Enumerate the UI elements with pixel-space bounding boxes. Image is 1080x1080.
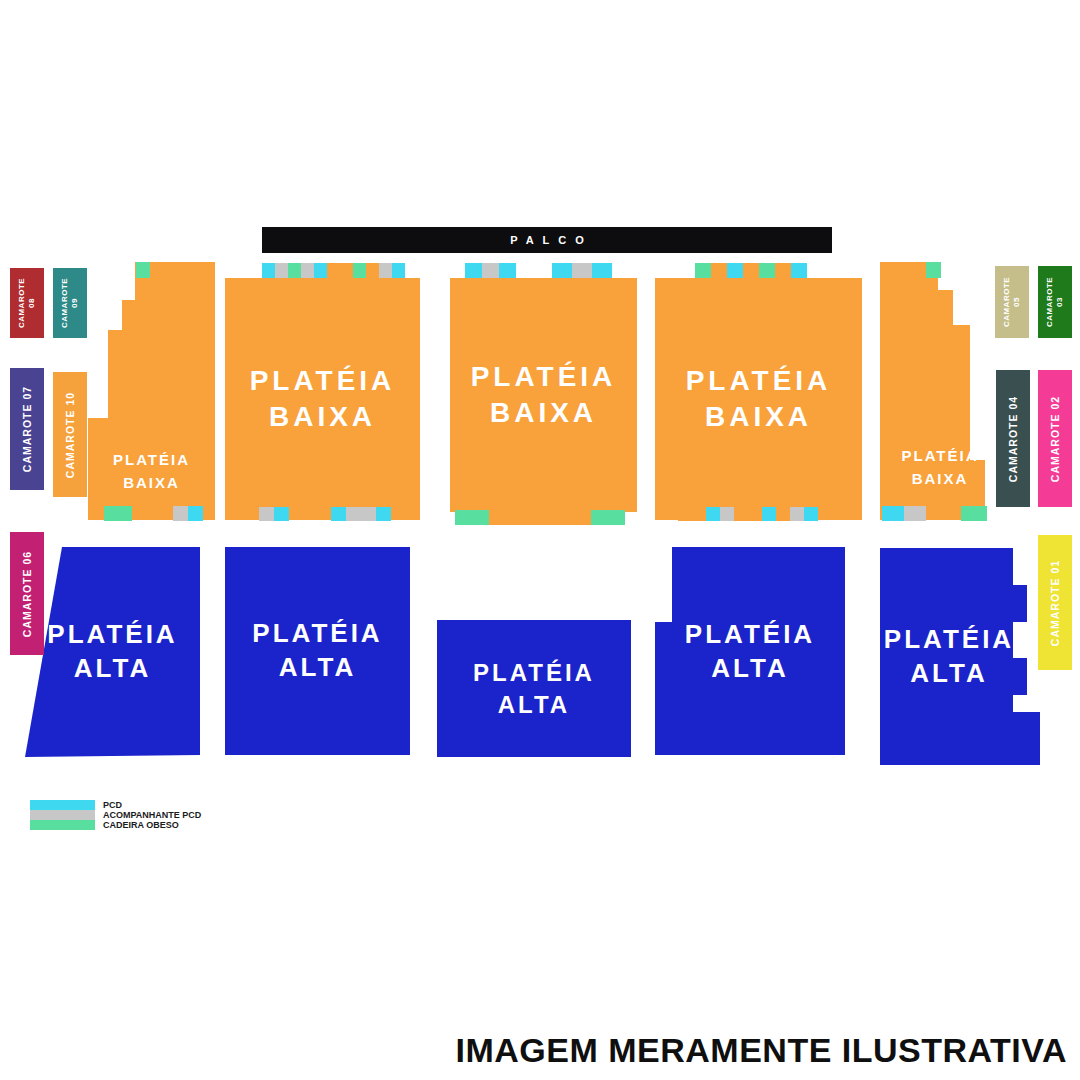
camarote-number: 05 <box>1012 277 1022 327</box>
seat-marker-pcd <box>791 263 807 278</box>
section-plateia-baixa-5[interactable]: PLATÉIA BAIXA <box>880 262 985 520</box>
seat-strip <box>926 262 941 278</box>
seat-marker-obeso <box>591 510 608 525</box>
seat-marker-pcd <box>804 507 818 521</box>
section-plateia-baixa-4[interactable]: PLATÉIA BAIXA <box>655 278 862 520</box>
legend-item-cadeira-obeso: CADEIRA OBESO <box>30 820 201 830</box>
seat-marker-pcd <box>499 263 516 278</box>
seat-marker-pcd <box>376 507 391 521</box>
camarote-label: CAMAROTE 02 <box>1049 395 1061 481</box>
seat-marker-comp <box>275 263 288 278</box>
seat-marker-obeso <box>288 263 301 278</box>
seat-marker-comp <box>720 507 734 521</box>
legend-item-pcd: PCD <box>30 800 201 810</box>
seat-marker-pcd <box>274 507 289 521</box>
seat-marker-obeso <box>353 263 366 278</box>
stage-bar: PALCO <box>262 227 832 253</box>
seat-marker-obeso <box>455 510 472 525</box>
camarote-05[interactable]: CAMAROTE05 <box>995 266 1029 338</box>
camarote-label: CAMAROTE 04 <box>1007 395 1019 481</box>
seat-marker-pcd <box>188 506 203 521</box>
seat-marker-comp <box>379 263 392 278</box>
section-plateia-baixa-2[interactable]: PLATÉIA BAIXA <box>225 278 420 520</box>
camarote-number: 03 <box>1055 277 1065 327</box>
seat-marker-fill <box>776 507 790 521</box>
seat-marker-obeso <box>608 510 625 525</box>
seat-marker-obeso <box>974 506 987 521</box>
seat-marker-fill <box>489 510 506 525</box>
legend-item-acompanhante-pcd: ACOMPANHANTE PCD <box>30 810 201 820</box>
seat-strip <box>552 263 612 278</box>
seat-strip <box>331 507 391 521</box>
seat-strip <box>882 506 926 521</box>
seat-strip <box>695 263 807 278</box>
seat-marker-fill <box>748 507 762 521</box>
seat-marker-fill <box>678 507 692 521</box>
legend-label: PCD <box>103 800 122 810</box>
section-label: PLATÉIA BAIXA <box>225 363 420 436</box>
legend: PCD ACOMPANHANTE PCD CADEIRA OBESO <box>30 800 201 830</box>
camarote-03[interactable]: CAMAROTE03 <box>1038 266 1072 338</box>
section-label: PLATÉIA BAIXA <box>92 449 212 494</box>
seat-marker-pcd <box>392 263 405 278</box>
seat-strip <box>465 263 516 278</box>
section-label: PLATÉIA BAIXA <box>659 363 859 436</box>
seat-marker-fill <box>523 510 540 525</box>
legend-label: CADEIRA OBESO <box>103 820 179 830</box>
camarote-number: 08 <box>27 278 37 328</box>
seat-marker-pcd <box>262 263 275 278</box>
seat-marker-pcd <box>706 507 720 521</box>
seat-strip <box>173 506 203 521</box>
seat-marker-comp <box>482 263 499 278</box>
seat-marker-pcd <box>331 507 346 521</box>
seat-marker-fill <box>574 510 591 525</box>
seat-marker-obeso <box>695 263 711 278</box>
seat-strip <box>455 510 625 525</box>
seat-strip <box>961 506 987 521</box>
camarote-label: CAMAROTE <box>17 278 27 328</box>
seating-map: PALCO PLATÉIA BAIXA PLATÉIA BAIXA PLATÉI… <box>0 0 1080 1080</box>
seat-marker-fill <box>366 263 379 278</box>
cadeira-obeso-swatch <box>30 820 95 830</box>
camarote-label: CAMAROTE <box>60 278 70 328</box>
seat-marker-fill <box>775 263 791 278</box>
seat-marker-comp <box>572 263 592 278</box>
camarote-02[interactable]: CAMAROTE 02 <box>1038 370 1072 507</box>
seat-marker-obeso <box>759 263 775 278</box>
seat-marker-obeso <box>118 506 132 521</box>
seat-marker-obeso <box>472 510 489 525</box>
seat-marker-comp <box>790 507 804 521</box>
camarote-08[interactable]: CAMAROTE08 <box>10 268 44 338</box>
seat-marker-comp <box>904 506 915 521</box>
camarote-label: CAMAROTE <box>1045 277 1055 327</box>
camarote-06[interactable]: CAMAROTE 06 <box>10 532 44 655</box>
seat-marker-pcd <box>727 263 743 278</box>
seat-marker-fill <box>540 510 557 525</box>
seat-marker-comp <box>259 507 274 521</box>
section-plateia-alta-3[interactable]: PLATÉIA ALTA <box>437 620 631 757</box>
camarote-01[interactable]: CAMAROTE 01 <box>1038 535 1072 670</box>
camarote-label: CAMAROTE 06 <box>21 550 33 636</box>
seat-marker-pcd <box>762 507 776 521</box>
pcd-swatch <box>30 800 95 810</box>
seat-marker-fill <box>711 263 727 278</box>
section-label: PLATÉIA BAIXA <box>450 359 637 432</box>
section-plateia-alta-1[interactable]: PLATÉIA ALTA <box>25 547 200 757</box>
seat-marker-fill <box>743 263 759 278</box>
seat-marker-pcd <box>552 263 572 278</box>
seat-marker-comp <box>915 506 926 521</box>
seat-strip <box>104 506 132 521</box>
camarote-07[interactable]: CAMAROTE 07 <box>10 368 44 490</box>
section-label: PLATÉIA ALTA <box>655 618 845 686</box>
camarote-label: CAMAROTE 07 <box>21 386 33 472</box>
section-plateia-baixa-3[interactable]: PLATÉIA BAIXA <box>450 278 637 512</box>
camarote-label: CAMAROTE 01 <box>1049 559 1061 645</box>
seat-marker-pcd <box>893 506 904 521</box>
seat-marker-comp <box>301 263 314 278</box>
camarote-10[interactable]: CAMAROTE 10 <box>53 372 87 497</box>
seat-marker-obeso <box>104 506 118 521</box>
legend-label: ACOMPANHANTE PCD <box>103 810 201 820</box>
acompanhante-pcd-swatch <box>30 810 95 820</box>
seat-marker-fill <box>557 510 574 525</box>
camarote-number: 09 <box>70 278 80 328</box>
section-label: PLATÉIA ALTA <box>225 617 410 685</box>
section-plateia-alta-4[interactable]: PLATÉIA ALTA <box>655 547 845 757</box>
seat-marker-comp <box>346 507 361 521</box>
section-plateia-baixa-1[interactable]: PLATÉIA BAIXA <box>88 262 215 520</box>
seat-marker-comp <box>173 506 188 521</box>
section-label: PLATÉIA ALTA <box>444 657 624 719</box>
seat-marker-obeso <box>136 262 150 278</box>
seat-strip <box>678 507 818 521</box>
section-plateia-alta-2[interactable]: PLATÉIA ALTA <box>225 547 410 755</box>
seat-strip <box>259 507 289 521</box>
seat-marker-fill <box>692 507 706 521</box>
seat-marker-fill <box>340 263 353 278</box>
camarote-label: CAMAROTE 10 <box>64 391 76 477</box>
seat-marker-pcd <box>314 263 327 278</box>
seat-marker-obeso <box>926 262 941 278</box>
seat-marker-pcd <box>882 506 893 521</box>
section-label: PLATÉIA BAIXA <box>880 445 1000 490</box>
section-label: PLATÉIA ALTA <box>25 618 200 686</box>
section-plateia-alta-5[interactable]: PLATÉIA ALTA <box>880 548 1040 765</box>
seat-strip <box>262 263 405 278</box>
seat-marker-fill <box>506 510 523 525</box>
seat-marker-fill <box>734 507 748 521</box>
seat-strip <box>136 262 150 278</box>
camarote-09[interactable]: CAMAROTE09 <box>53 268 87 338</box>
seat-marker-pcd <box>465 263 482 278</box>
seat-marker-fill <box>327 263 340 278</box>
seat-marker-comp <box>361 507 376 521</box>
stage-label: PALCO <box>501 234 593 246</box>
seat-marker-obeso <box>961 506 974 521</box>
camarote-label: CAMAROTE <box>1002 277 1012 327</box>
disclaimer-text: IMAGEM MERAMENTE ILUSTRATIVA <box>456 1031 1068 1070</box>
camarote-04[interactable]: CAMAROTE 04 <box>996 370 1030 507</box>
seat-marker-pcd <box>592 263 612 278</box>
section-label: PLATÉIA ALTA <box>880 623 1040 691</box>
